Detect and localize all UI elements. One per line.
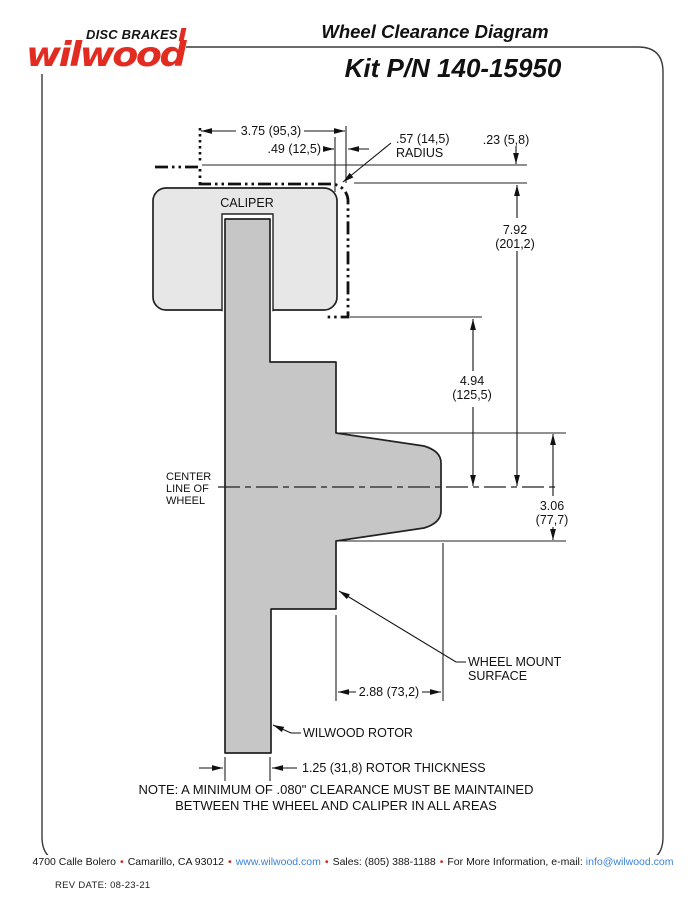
wheel-mount-label-1: WHEEL MOUNT: [468, 655, 562, 669]
dim-wheel-depth-label-1: 7.92: [503, 223, 527, 237]
footer: 4700 Calle Bolero•Camarillo, CA 93012•ww…: [24, 855, 683, 869]
wheel-mount-leader: [339, 591, 466, 662]
dim-wheel-lip-label: .23 (5,8): [483, 133, 530, 147]
footer-info: For More Information, e-mail:: [447, 856, 582, 868]
dim-wheel-depth-label-2: (201,2): [495, 237, 535, 251]
centerline-label-1: CENTER: [166, 471, 211, 483]
dim-radius-label-1: .57 (14,5): [396, 132, 450, 146]
caliper-label: CALIPER: [220, 196, 274, 210]
dim-mount-depth-label: 2.88 (73,2): [359, 685, 419, 699]
note-line-1: NOTE: A MINIMUM OF .080" CLEARANCE MUST …: [139, 782, 534, 797]
footer-separator: •: [228, 856, 232, 868]
page: DISC BRAKES wilwood Wheel Clearance Diag…: [0, 0, 700, 906]
rotor-label: WILWOOD ROTOR: [303, 726, 413, 740]
clearance-diagram: CALIPER 3.75 (95,3) .49 (12,5) .57 (14,5…: [0, 0, 700, 906]
footer-city: Camarillo, CA 93012: [128, 856, 224, 868]
dim-radius-label-2: RADIUS: [396, 146, 443, 160]
email-link[interactable]: info@wilwood.com: [586, 856, 674, 868]
footer-separator: •: [120, 856, 124, 868]
rotor-leader: [273, 725, 301, 733]
footer-separator: •: [325, 856, 329, 868]
dim-caliper-to-center-label-1: 4.94: [460, 374, 484, 388]
dim-rotor-thickness-label: 1.25 (31,8) ROTOR THICKNESS: [302, 761, 486, 775]
footer-address: 4700 Calle Bolero: [33, 856, 116, 868]
centerline-label-2: LINE OF: [166, 483, 209, 495]
dim-hat-height-label-1: 3.06: [540, 499, 564, 513]
rev-date: REV DATE: 08-23-21: [55, 880, 151, 891]
footer-sales: Sales: (805) 388-1188: [333, 856, 436, 868]
dim-caliper-to-center-label-2: (125,5): [452, 388, 492, 402]
centerline-label-3: WHEEL: [166, 495, 205, 507]
dim-overall-width-label: 3.75 (95,3): [241, 124, 301, 138]
website-link[interactable]: www.wilwood.com: [236, 856, 321, 868]
dim-lip-offset-label: .49 (12,5): [267, 142, 321, 156]
footer-separator: •: [440, 856, 444, 868]
dim-hat-height-label-2: (77,7): [536, 513, 569, 527]
note-line-2: BETWEEN THE WHEEL AND CALIPER IN ALL ARE…: [175, 798, 497, 813]
wheel-mount-label-2: SURFACE: [468, 669, 527, 683]
